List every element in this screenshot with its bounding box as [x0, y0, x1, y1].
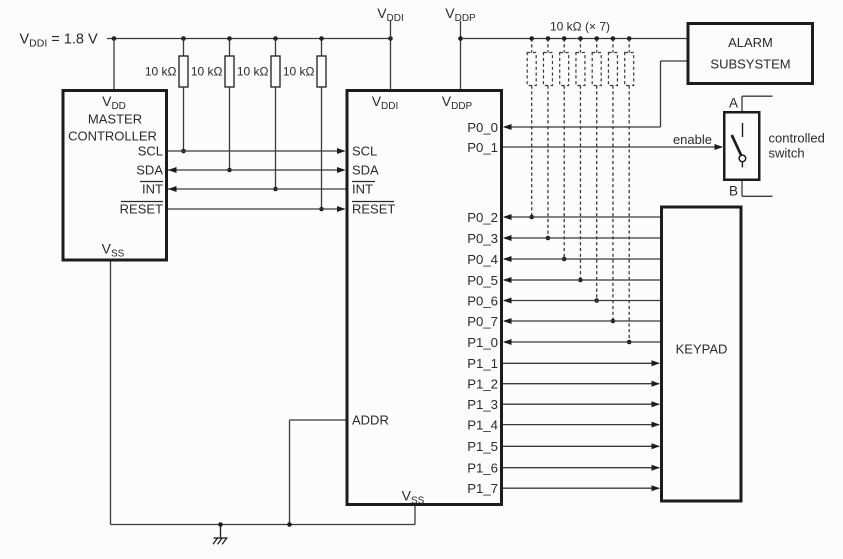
- svg-text:SUBSYSTEM: SUBSYSTEM: [710, 57, 790, 72]
- svg-text:P1_6: P1_6: [467, 461, 498, 476]
- svg-text:P1_2: P1_2: [467, 377, 498, 392]
- svg-text:P0_4: P0_4: [467, 252, 498, 267]
- svg-text:P1_0: P1_0: [467, 335, 498, 350]
- svg-text:SDA: SDA: [352, 163, 379, 178]
- svg-text:10 kΩ: 10 kΩ: [237, 65, 269, 79]
- svg-text:P0_5: P0_5: [467, 273, 498, 288]
- svg-text:P0_0: P0_0: [467, 120, 498, 135]
- svg-text:SCL: SCL: [352, 144, 377, 159]
- svg-text:A: A: [729, 96, 738, 111]
- svg-text:RESET: RESET: [352, 202, 395, 217]
- svg-text:P0_3: P0_3: [467, 231, 498, 246]
- svg-text:P0_7: P0_7: [467, 314, 498, 329]
- svg-text:B: B: [729, 184, 738, 199]
- svg-text:10 kΩ: 10 kΩ: [283, 65, 315, 79]
- svg-text:controlled: controlled: [769, 131, 825, 146]
- svg-text:SCL: SCL: [138, 144, 163, 159]
- svg-text:ADDR: ADDR: [352, 413, 389, 428]
- svg-text:P1_4: P1_4: [467, 417, 498, 432]
- svg-text:CONTROLLER: CONTROLLER: [68, 129, 157, 144]
- svg-text:INT: INT: [352, 182, 373, 197]
- svg-text:P0_6: P0_6: [467, 293, 498, 308]
- svg-text:P0_2: P0_2: [467, 210, 498, 225]
- svg-text:P1_3: P1_3: [467, 397, 498, 412]
- svg-text:switch: switch: [769, 146, 805, 161]
- svg-text:10 kΩ (× 7): 10 kΩ (× 7): [550, 20, 610, 34]
- svg-text:INT: INT: [142, 182, 163, 197]
- svg-text:P1_5: P1_5: [467, 439, 498, 454]
- svg-text:MASTER: MASTER: [88, 112, 142, 127]
- svg-text:P0_1: P0_1: [467, 140, 498, 155]
- svg-text:10 kΩ: 10 kΩ: [191, 65, 223, 79]
- svg-text:10 kΩ: 10 kΩ: [145, 65, 177, 79]
- svg-text:P1_1: P1_1: [467, 356, 498, 371]
- svg-text:ALARM: ALARM: [728, 35, 773, 50]
- svg-text:KEYPAD: KEYPAD: [676, 342, 728, 357]
- svg-text:SDA: SDA: [136, 163, 163, 178]
- svg-text:P1_7: P1_7: [467, 481, 498, 496]
- svg-text:RESET: RESET: [120, 202, 163, 217]
- svg-text:enable: enable: [673, 132, 712, 147]
